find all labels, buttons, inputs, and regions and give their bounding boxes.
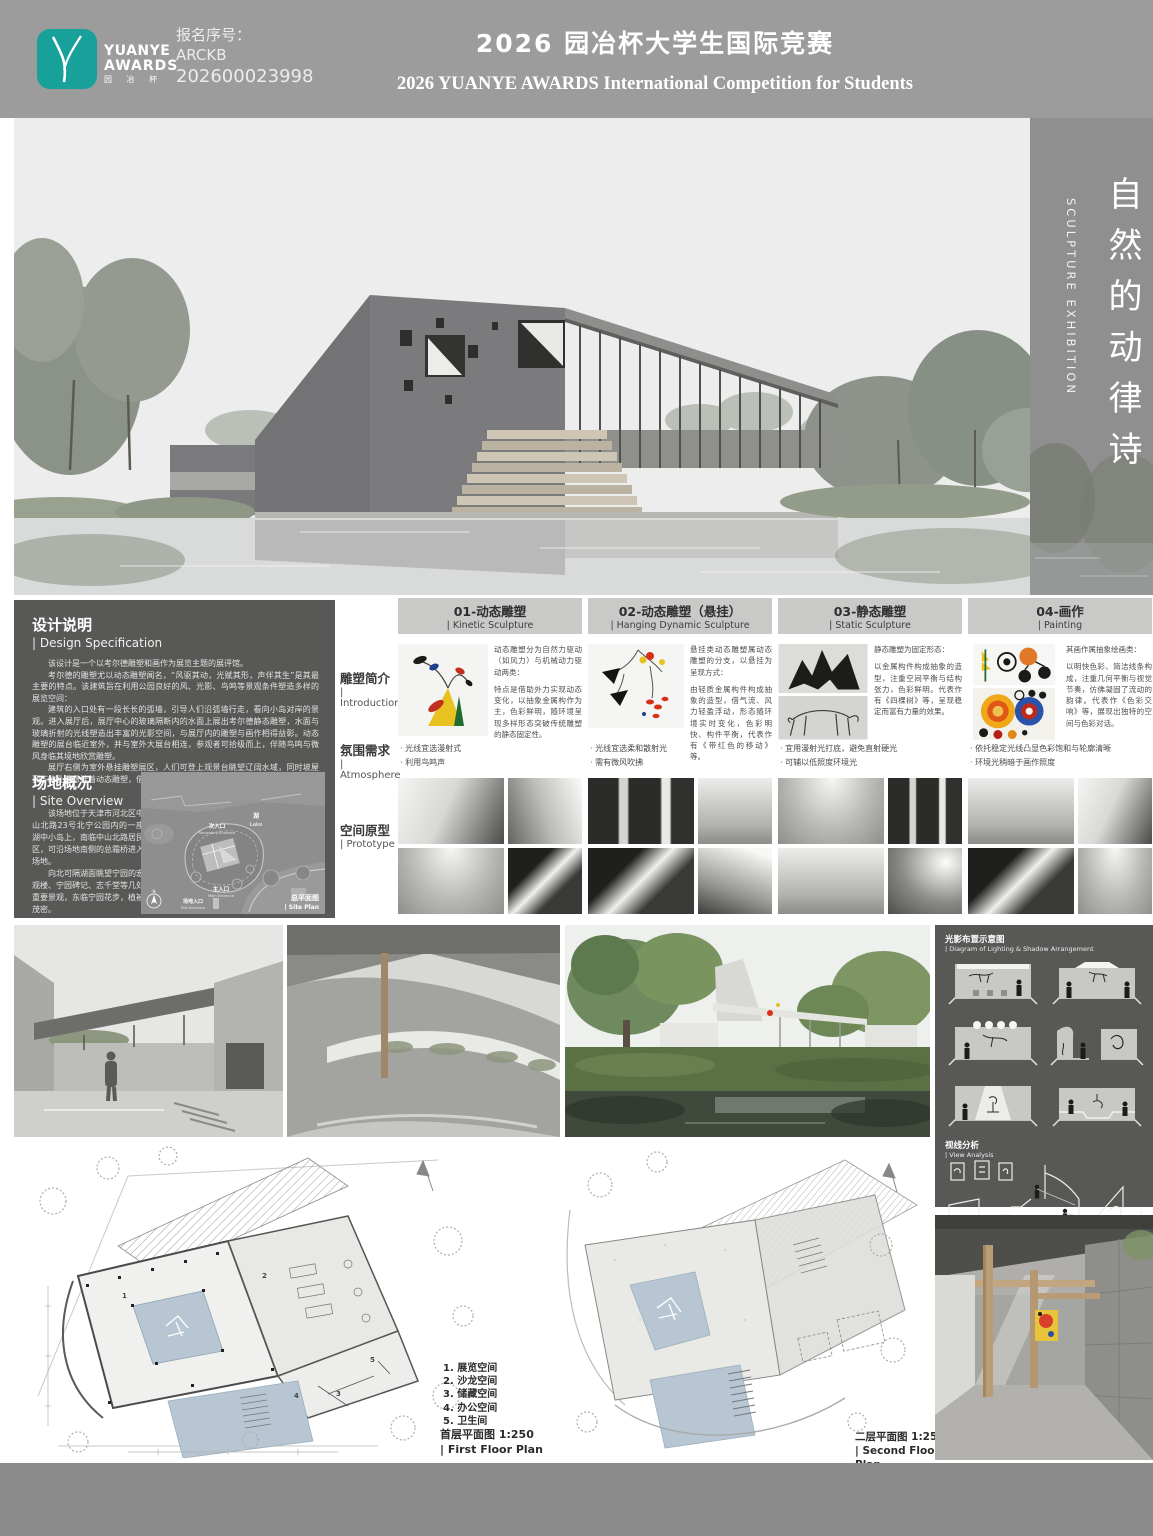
map-site-entrance-en: Site Entrance: [181, 906, 206, 910]
brand-line2: AWARDS: [104, 59, 178, 74]
site-overview-block: 场地概况 | Site Overview 该场地位于天津市河北区中山北路23号北…: [32, 772, 327, 910]
courtyard-render: [14, 925, 283, 1137]
map-lake-cn: 湖: [253, 812, 259, 820]
lighting-analysis-panel: 光影布置示意图 | Diagram of Lighting & Shadow A…: [935, 925, 1153, 1207]
column-painting: 04-画作 | Painting: [968, 598, 1152, 922]
poster-title-vertical: 自然的动律诗: [1105, 176, 1139, 482]
svg-text:4: 4: [294, 1392, 299, 1400]
column-header: 02-动态雕塑（悬挂） | Hanging Dynamic Sculpture: [588, 598, 772, 634]
svg-text:2: 2: [262, 1272, 267, 1280]
map-main-en: Main Entrance: [208, 894, 235, 898]
sculpture-matrix: 雕塑简介 | Introduction 氛围需求 | Atmosphere 空间…: [340, 598, 1153, 922]
lighting-diagram: [1049, 958, 1145, 1010]
prototype-grid: [588, 778, 772, 914]
intro-text: 动态雕塑分为自然力驱动（如风力）与机械动力驱动两类： 特点是借助外力实现动态变化…: [494, 644, 582, 740]
intro-text: 静态雕塑为固定形态： 以金属构件构成抽象的造型，注重空间平衡与结构张力，色彩鲜明…: [874, 644, 962, 740]
prototype-image: [1078, 848, 1152, 914]
prototype-image: [398, 778, 504, 844]
brand-cn: 园 冶 杯: [104, 76, 178, 84]
entry-number-block: 报名序号： ARCKB 202600023998: [176, 26, 313, 88]
competition-title-cn: 2026 园冶杯大学生国际竞赛: [330, 24, 980, 60]
prototype-image: [1078, 778, 1152, 844]
entry-code: ARCKB: [176, 46, 313, 66]
prototype-image: [778, 778, 884, 844]
intro-text: 悬挂类动态雕塑属动态雕塑的分支，以悬挂为呈现方式： 由轻质金属构件构成抽象的造型…: [690, 644, 772, 740]
prototype-grid: [968, 778, 1152, 914]
second-floor-plan-drawing: [545, 1150, 925, 1454]
kinetic-sculpture-photo: [398, 644, 488, 736]
prototype-image: [968, 848, 1074, 914]
svg-text:5: 5: [370, 1356, 375, 1364]
poster-subtitle-vertical: SCULPTURE EXHIBITION: [1064, 198, 1078, 396]
prototype-image: [968, 778, 1074, 844]
view-analysis-heading-en: | View Analysis: [945, 1151, 1145, 1159]
header-bar: YUANYE AWARDS 园 冶 杯 报名序号： ARCKB 20260002…: [0, 0, 1153, 118]
curved-wall-render: [287, 925, 560, 1137]
title-sidebar: 自然的动律诗 SCULPTURE EXHIBITION ALEXANDER CA…: [1030, 118, 1153, 595]
lighting-heading-en: | Diagram of Lighting & Shadow Arrangeme…: [945, 945, 1145, 953]
spec-paragraph: 考尔德的雕塑尤以动态雕塑闻名，“风驱其动，光赋其形，声伴其生”是其最主要的特点。…: [32, 670, 319, 705]
lighting-diagram: [945, 1019, 1041, 1071]
prototype-image: [698, 778, 772, 844]
spec-paragraph: 该设计是一个以考尔德雕塑和画作为展览主题的展评馆。: [32, 658, 319, 670]
atmosphere-bullets: · 依托稳定光线凸显色彩饱和与轮廓清晰 · 环境光稍暗于画作照度: [970, 742, 1153, 771]
prototype-grid: [398, 778, 582, 914]
row-label-introduction: 雕塑简介 | Introduction: [340, 668, 396, 709]
first-floor-plan-drawing: 12345: [18, 1146, 488, 1462]
map-caption-en: | Site Plan: [285, 904, 319, 911]
stabile-sculpture-photo: [778, 644, 868, 693]
prototype-image: [588, 848, 694, 914]
painting-photo-1: [968, 644, 1060, 685]
entry-number: 202600023998: [176, 65, 313, 88]
hero-building-render: [14, 118, 1030, 595]
atmosphere-bullets: · 光线宜选漫射式 · 利用鸟鸣声: [400, 742, 584, 771]
column-kinetic-sculpture: 01-动态雕塑 | Kinetic Sculpture: [398, 598, 582, 922]
hanging-mobile-photo: [588, 644, 684, 728]
interior-corridor-render: [935, 1215, 1153, 1460]
brand-line1: YUANYE: [104, 44, 178, 59]
prototype-image: [888, 778, 962, 844]
map-site-entrance-cn: 场地入口: [183, 898, 203, 905]
svg-text:3: 3: [336, 1390, 341, 1398]
svg-text:1: 1: [122, 1292, 127, 1300]
lighting-diagram-grid: [945, 958, 1145, 1132]
svg-text:N: N: [153, 889, 156, 894]
lighting-diagram: [1049, 1019, 1145, 1071]
prototype-image: [588, 778, 694, 844]
prototype-image: [398, 848, 504, 914]
row-label-atmosphere: 氛围需求 | Atmosphere: [340, 740, 396, 781]
competition-titles: 2026 园冶杯大学生国际竞赛 2026 YUANYE AWARDS Inter…: [330, 24, 980, 95]
site-plan-map: 湖 Lake 次入口 Secondary Entrance 主入口 Main E…: [141, 772, 325, 914]
column-header: 01-动态雕塑 | Kinetic Sculpture: [398, 598, 582, 634]
prototype-grid: [778, 778, 962, 914]
design-spec-heading-cn: 设计说明: [32, 614, 319, 635]
wire-sculpture-photo: [778, 696, 868, 740]
column-header: 04-画作 | Painting: [968, 598, 1152, 634]
spec-paragraph: 建筑的入口处有一段长长的弧墙，引导人们沿弧墙行走，看向小岛对岸的景观。进入展厅后…: [32, 704, 319, 762]
yuanye-logo-icon: [36, 28, 98, 90]
map-lake-en: Lake: [250, 822, 263, 828]
painting-photo-2: [968, 688, 1060, 740]
exterior-green-render: [565, 925, 930, 1137]
design-spec-text: 该设计是一个以考尔德雕塑和画作为展览主题的展评馆。 考尔德的雕塑尤以动态雕塑闻名…: [32, 658, 319, 786]
atmosphere-bullets: · 光线宜选柔和散射光 · 需有微风吹拂: [590, 742, 774, 771]
intro-text: 其画作属抽象绘画类： 以明快色彩、简洁线条构成，注重几何平衡与视觉节奏，仿佛凝固…: [1066, 644, 1152, 740]
calder-painting: [1035, 1310, 1058, 1341]
competition-title-en: 2026 YUANYE AWARDS International Competi…: [330, 74, 980, 95]
column-static-sculpture: 03-静态雕塑 | Static Sculpture 静态雕塑为固定形态：: [778, 598, 962, 922]
prototype-image: [508, 778, 582, 844]
prototype-image: [888, 848, 962, 914]
footer-band: [0, 1463, 1153, 1536]
design-spec-panel: 设计说明 | Design Specification 该设计是一个以考尔德雕塑…: [14, 600, 335, 918]
map-main-cn: 主入口: [213, 885, 230, 893]
prototype-image: [698, 848, 772, 914]
lighting-heading-cn: 光影布置示意图: [945, 933, 1145, 945]
prototype-image: [778, 848, 884, 914]
map-secondary-cn: 次入口: [209, 822, 226, 830]
row-label-prototype: 空间原型 | Prototype: [340, 820, 396, 850]
map-secondary-en: Secondary Entrance: [199, 831, 236, 835]
column-header: 03-静态雕塑 | Static Sculpture: [778, 598, 962, 634]
atmosphere-bullets: · 宜用漫射光打底，避免直射硬光 · 可辅以低照度环境光: [780, 742, 964, 771]
lighting-diagram: [945, 1080, 1041, 1132]
prototype-image: [508, 848, 582, 914]
competition-poster: YUANYE AWARDS 园 冶 杯 报名序号： ARCKB 20260002…: [0, 0, 1153, 1536]
site-overview-text: 该场地位于天津市河北区中山北路23号北宁公园内的一座湖中小岛上，南临中山北路居民…: [32, 808, 144, 916]
view-analysis-heading-cn: 视线分析: [945, 1139, 1145, 1151]
design-spec-heading-en: | Design Specification: [32, 636, 319, 650]
lighting-diagram: [945, 958, 1041, 1010]
lighting-diagram: [1049, 1080, 1145, 1132]
site-paragraph: 该场地位于天津市河北区中山北路23号北宁公园内的一座湖中小岛上，南临中山北路居民…: [32, 808, 144, 868]
site-paragraph: 向北可隔湖面眺望宁园的宏观楼、宁园碑记、志千堂等几处重要景观，东临宁园花步，植被…: [32, 868, 144, 916]
column-hanging-sculpture: 02-动态雕塑（悬挂） | Hanging Dynamic Sculpture: [588, 598, 772, 922]
brand-text: YUANYE AWARDS 园 冶 杯: [104, 44, 178, 85]
entry-label: 报名序号：: [176, 26, 313, 46]
map-caption-cn: 总平面图: [291, 893, 319, 902]
